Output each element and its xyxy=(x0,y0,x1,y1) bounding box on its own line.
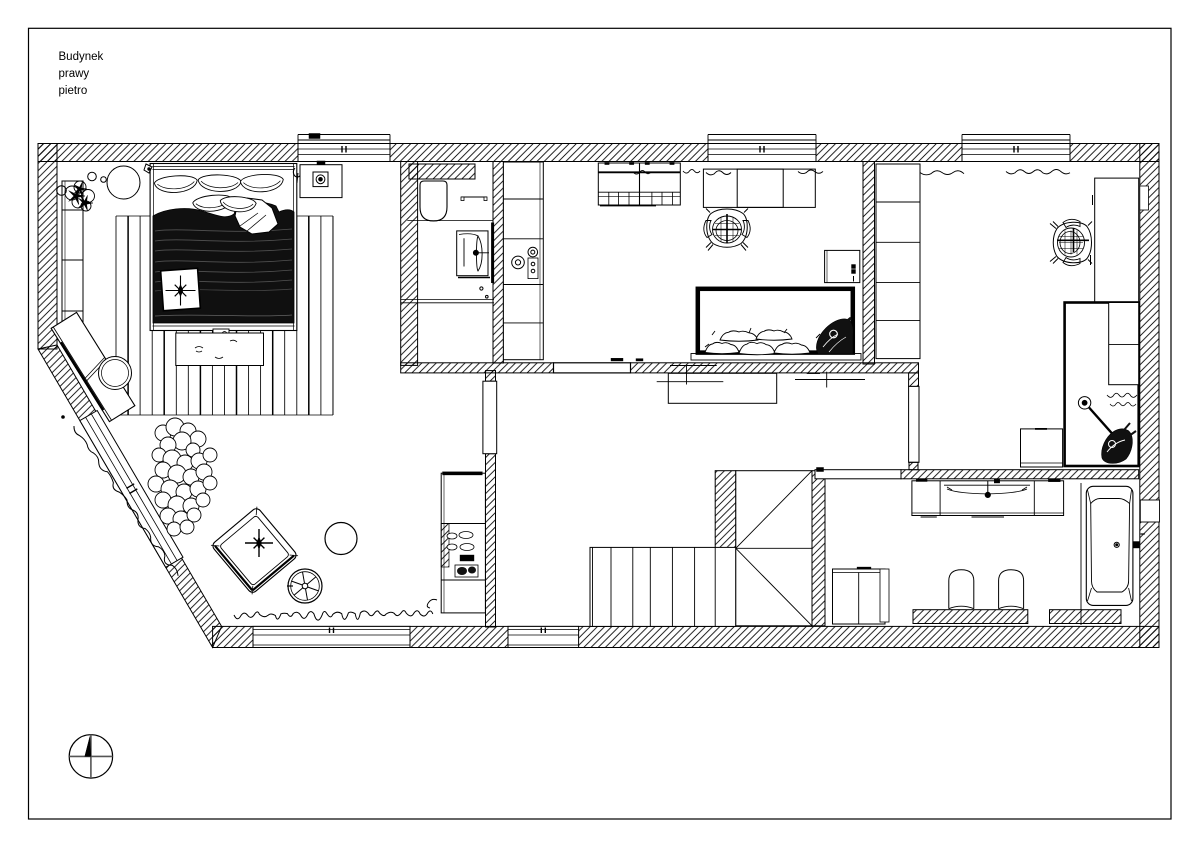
svg-text:prawy: prawy xyxy=(59,68,90,80)
svg-text:pietro: pietro xyxy=(59,85,88,97)
svg-text:Budynek: Budynek xyxy=(59,51,104,63)
